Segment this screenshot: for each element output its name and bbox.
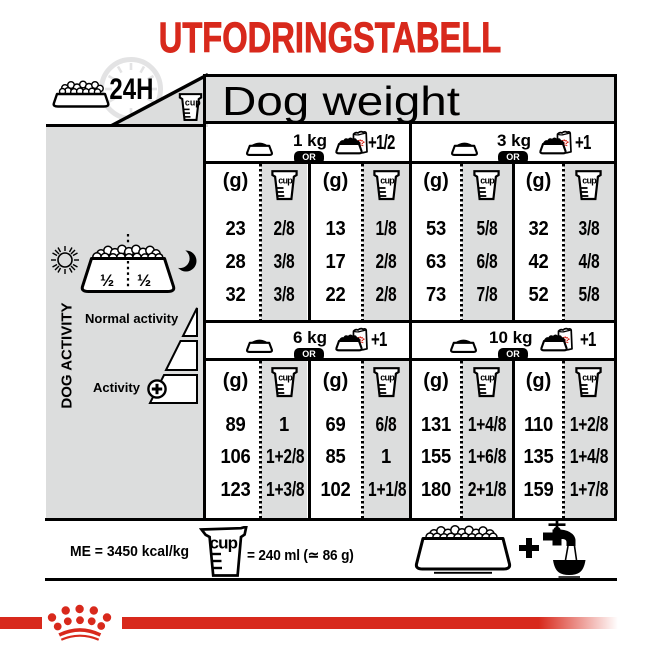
svg-text:cup: cup [210,534,239,553]
svg-text:½: ½ [100,271,114,290]
svg-text:½: ½ [137,271,151,290]
svg-text:cup: cup [185,98,201,108]
